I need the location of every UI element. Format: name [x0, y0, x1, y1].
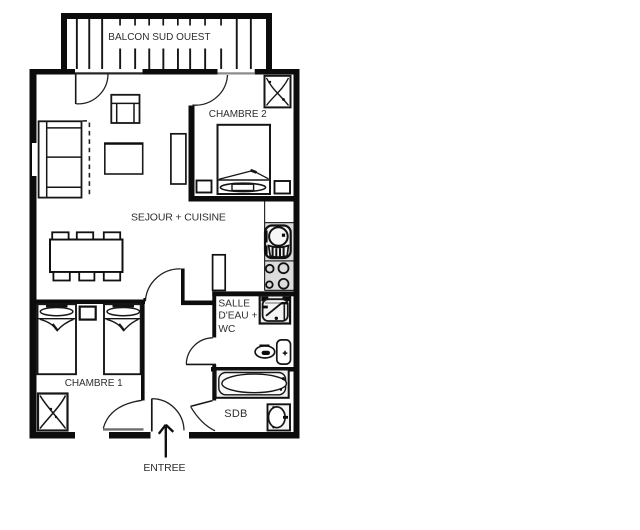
svg-text:WC: WC — [218, 324, 235, 335]
svg-text:ENTREE: ENTREE — [143, 462, 185, 474]
svg-text:CHAMBRE 1: CHAMBRE 1 — [65, 378, 123, 389]
svg-text:D'EAU +: D'EAU + — [218, 311, 257, 322]
svg-text:BALCON SUD OUEST: BALCON SUD OUEST — [108, 32, 210, 43]
svg-text:SEJOUR + CUISINE: SEJOUR + CUISINE — [131, 212, 226, 224]
svg-text:CHAMBRE 2: CHAMBRE 2 — [209, 109, 267, 120]
svg-text:SALLE: SALLE — [218, 299, 250, 310]
svg-text:SDB: SDB — [224, 408, 247, 420]
